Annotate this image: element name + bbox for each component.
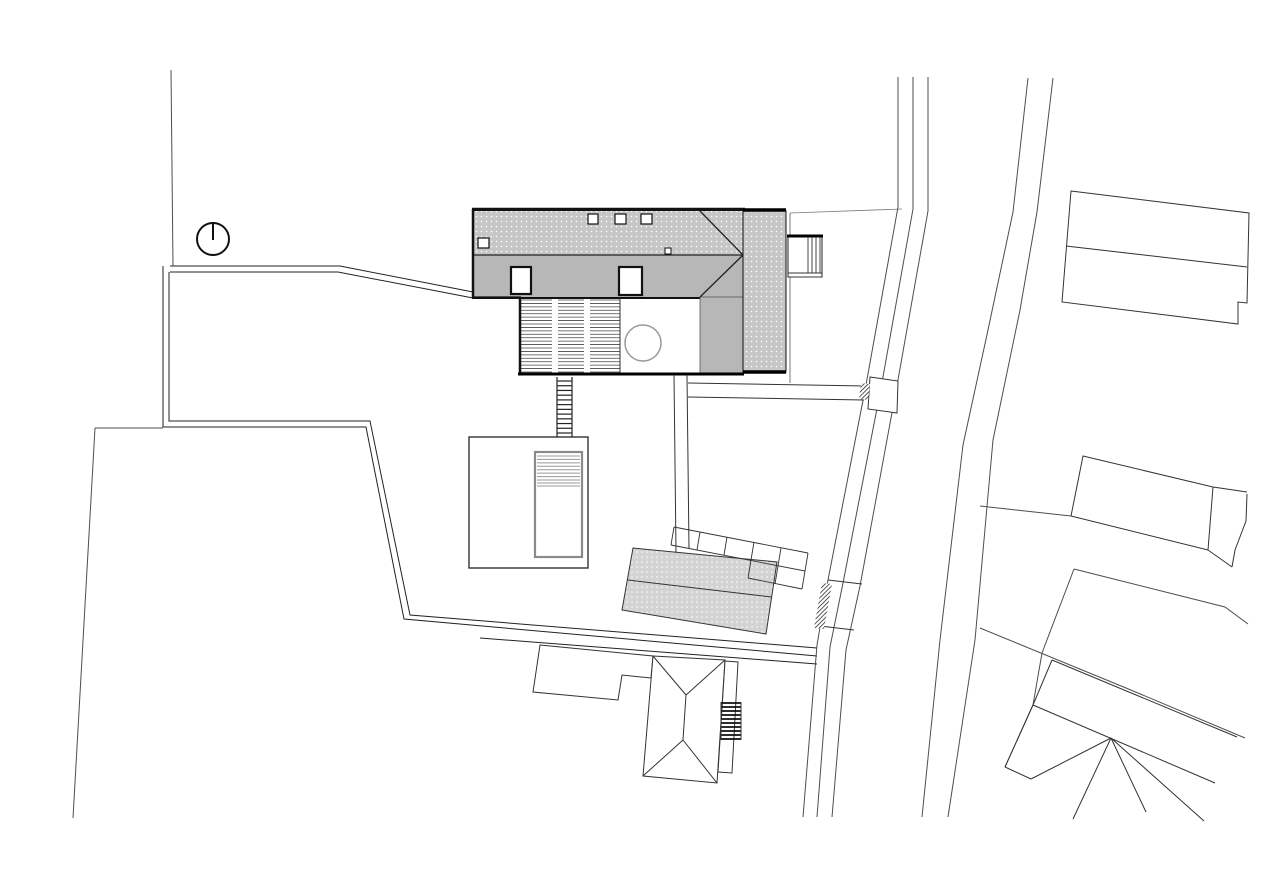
- chimney-skylight-1: [511, 267, 531, 294]
- deck-boards: [520, 300, 620, 372]
- skylight-1: [588, 214, 598, 224]
- neighbor-se-hip-4: [1111, 738, 1204, 821]
- paver-divider-9: [802, 571, 805, 589]
- neighbor-se-end-cap: [1033, 660, 1052, 705]
- parcel-line-east-3: [1005, 569, 1074, 767]
- paver-divider-4: [751, 542, 754, 560]
- parcel-line-east-2: [980, 628, 1245, 738]
- neighbor-e-ext-2: [1232, 494, 1247, 567]
- courtyard-wall-2: [687, 375, 689, 549]
- roof-vent: [665, 248, 671, 254]
- entry-path-north-edge: [170, 266, 473, 292]
- neighbor-e-ext-1: [1213, 487, 1247, 492]
- neighbor-se-sw-edge: [1005, 767, 1031, 779]
- street-east-edge: [832, 77, 928, 817]
- neighbor-ne-building: [1062, 191, 1249, 324]
- neighbor-south-wing: [533, 645, 653, 700]
- roof-ridge-strip: [743, 211, 786, 372]
- courtyard-wall-1: [674, 375, 676, 552]
- crossing-hatch-south: [814, 583, 832, 629]
- east-balcony: [788, 237, 822, 277]
- street-crossing-north: [868, 377, 898, 413]
- chimney-skylight-2: [619, 267, 642, 295]
- neighbor-se-hip-1: [1031, 738, 1111, 779]
- crossing-south-top: [828, 580, 862, 584]
- boundary-west-upper: [171, 70, 173, 266]
- pool: [535, 452, 582, 557]
- neighbor-e-building: [1071, 456, 1213, 550]
- paver-divider-3: [724, 537, 727, 555]
- parcel-line-east-4: [1074, 569, 1248, 624]
- east-drive-south-edge: [688, 397, 864, 400]
- site-plan: [0, 0, 1270, 887]
- skylight-2: [615, 214, 626, 224]
- main-roof-upper-texture: [474, 211, 744, 255]
- street2-east-edge: [948, 78, 1053, 817]
- street-west-edge: [803, 77, 898, 817]
- neighbor-e-ext-3: [1208, 550, 1232, 567]
- street-center-line: [817, 77, 913, 817]
- boundary-west: [73, 428, 95, 818]
- paver-divider-2: [697, 532, 700, 550]
- street2-west-edge: [922, 78, 1028, 817]
- skylight-4: [478, 238, 489, 248]
- site-plan-page: [0, 0, 1270, 887]
- neighbor-se-hip-2: [1073, 738, 1111, 819]
- neighbor-se-hip-3: [1111, 738, 1146, 812]
- tree-canopy: [625, 325, 661, 361]
- roof-south-extension: [700, 297, 743, 373]
- east-drive-north-edge: [688, 383, 866, 386]
- skylight-3: [641, 214, 652, 224]
- parcel-line-east-1: [980, 506, 1071, 516]
- paver-divider-5: [778, 548, 781, 566]
- entry-path-south-edge: [170, 272, 473, 298]
- crossing-south-bottom: [820, 626, 854, 630]
- pool-stair-treads: [557, 381, 572, 433]
- paver-divider-6: [805, 553, 808, 571]
- north-terrace-line: [790, 209, 902, 213]
- neighbor-se-west-edge: [1005, 705, 1033, 767]
- paver-divider-1: [671, 527, 674, 545]
